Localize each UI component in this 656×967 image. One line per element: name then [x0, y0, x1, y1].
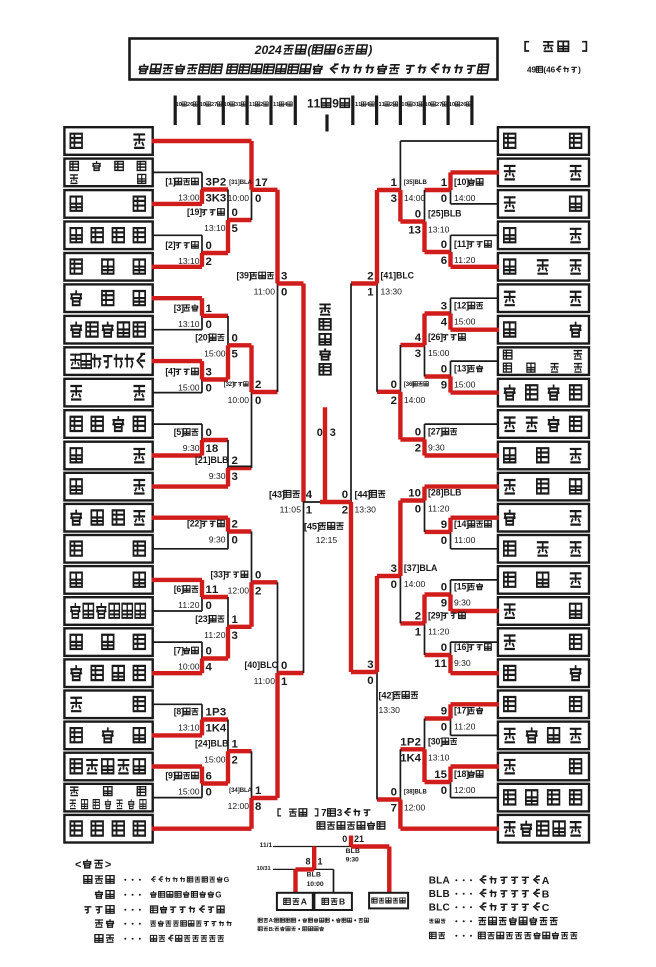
- svg-text:10:00: 10:00: [228, 395, 250, 405]
- svg-text:3: 3: [391, 563, 397, 575]
- svg-text:9:30: 9:30: [209, 535, 226, 545]
- svg-text:3: 3: [441, 301, 447, 313]
- svg-text:2: 2: [232, 455, 238, 467]
- svg-text:>: >: [105, 859, 111, 871]
- svg-text:13:10: 13:10: [204, 223, 226, 233]
- svg-text:6: 6: [337, 43, 344, 57]
- svg-text:0: 0: [206, 240, 212, 252]
- svg-text:11:05: 11:05: [280, 505, 302, 515]
- svg-text:3K3: 3K3: [206, 193, 227, 205]
- svg-text:[16]: [16]: [454, 642, 469, 652]
- svg-text:0: 0: [441, 535, 447, 547]
- svg-text:): ): [578, 66, 581, 75]
- svg-text:0: 0: [232, 332, 238, 344]
- svg-text:14:00: 14:00: [454, 193, 476, 203]
- svg-text:1: 1: [415, 627, 422, 639]
- svg-text:2: 2: [260, 102, 263, 108]
- svg-text:1: 1: [232, 614, 239, 626]
- svg-text:0: 0: [232, 535, 238, 547]
- svg-text:9:30: 9:30: [346, 856, 359, 863]
- svg-text:10: 10: [425, 102, 431, 108]
- svg-text:[2]: [2]: [165, 240, 175, 250]
- svg-text:11:00: 11:00: [454, 535, 476, 545]
- svg-text:0: 0: [206, 383, 212, 395]
- svg-text:C: C: [542, 902, 550, 914]
- svg-text:15:00: 15:00: [178, 383, 200, 393]
- svg-text:6: 6: [206, 771, 212, 783]
- svg-text:0: 0: [206, 427, 212, 439]
- svg-text:[26]: [26]: [428, 332, 443, 342]
- svg-text:7: 7: [391, 803, 397, 815]
- svg-text:0: 0: [391, 379, 397, 391]
- svg-text:[30]: [30]: [428, 737, 443, 747]
- svg-text:1K4: 1K4: [206, 723, 227, 735]
- svg-text:10:00: 10:00: [228, 193, 250, 203]
- svg-text:13:10: 13:10: [178, 256, 200, 266]
- svg-text:0: 0: [342, 489, 348, 501]
- svg-text:[32]: [32]: [224, 382, 234, 388]
- svg-text:[13]: [13]: [454, 364, 469, 374]
- svg-text:9: 9: [441, 519, 447, 531]
- svg-text:[1]: [1]: [165, 177, 175, 187]
- svg-text:0: 0: [391, 579, 397, 591]
- svg-text:[8]: [8]: [174, 707, 184, 717]
- svg-text:1: 1: [318, 857, 323, 867]
- svg-text:17: 17: [255, 177, 268, 189]
- svg-text:3: 3: [391, 193, 397, 205]
- svg-text:0: 0: [441, 582, 447, 594]
- svg-text:1: 1: [206, 303, 213, 315]
- svg-text:11:20: 11:20: [428, 504, 450, 514]
- svg-text:14:00: 14:00: [404, 579, 426, 589]
- svg-text:10: 10: [408, 488, 421, 500]
- svg-text:B: B: [542, 888, 550, 900]
- svg-text:3P2: 3P2: [206, 177, 227, 189]
- svg-text:[5]: [5]: [174, 427, 184, 437]
- svg-text:BLB: BLB: [429, 889, 450, 900]
- svg-text:[24]BLB: [24]BLB: [195, 738, 229, 748]
- svg-text:0: 0: [441, 785, 447, 797]
- svg-text:2024: 2024: [254, 43, 282, 57]
- svg-text:[35]BLB: [35]BLB: [404, 180, 428, 186]
- svg-text:A: A: [301, 897, 307, 907]
- svg-text:0: 0: [206, 319, 212, 331]
- svg-text:9: 9: [441, 380, 447, 392]
- svg-text:[15]: [15]: [454, 582, 469, 592]
- svg-text:[21]BLB: [21]BLB: [195, 455, 229, 465]
- svg-text:0: 0: [441, 239, 447, 251]
- svg-text:27: 27: [211, 102, 217, 108]
- svg-text:3: 3: [367, 659, 373, 671]
- svg-text:2: 2: [232, 754, 238, 766]
- svg-text:B:: B:: [269, 927, 275, 933]
- svg-text:0: 0: [415, 504, 421, 516]
- svg-text:1: 1: [391, 177, 398, 189]
- svg-text:[11]: [11]: [454, 239, 469, 249]
- svg-text:11:00: 11:00: [254, 287, 276, 297]
- svg-text:9:30: 9:30: [209, 471, 226, 481]
- svg-text:2: 2: [391, 395, 397, 407]
- svg-text:13:30: 13:30: [381, 287, 403, 297]
- svg-text:3: 3: [415, 348, 421, 360]
- svg-text:10: 10: [200, 102, 206, 108]
- svg-text:[44]: [44]: [355, 489, 371, 499]
- svg-text:1: 1: [232, 738, 239, 750]
- svg-text:0: 0: [415, 209, 421, 221]
- svg-text:9: 9: [441, 598, 447, 610]
- svg-text:<: <: [75, 859, 81, 871]
- svg-text:13:00: 13:00: [178, 193, 200, 203]
- svg-text:0: 0: [342, 834, 347, 844]
- svg-text:11:00: 11:00: [254, 676, 276, 686]
- svg-text:1: 1: [281, 676, 288, 688]
- svg-text:9:30: 9:30: [454, 598, 471, 608]
- svg-text:2: 2: [367, 271, 373, 283]
- svg-text:1: 1: [306, 505, 313, 517]
- svg-text:15:00: 15:00: [204, 348, 226, 358]
- svg-text:13:10: 13:10: [178, 319, 200, 329]
- svg-text:2: 2: [415, 611, 421, 623]
- svg-text:[22]: [22]: [187, 519, 202, 529]
- svg-text:11: 11: [307, 96, 321, 110]
- svg-text:15:00: 15:00: [428, 348, 450, 358]
- svg-text:1K4: 1K4: [400, 752, 421, 764]
- svg-text:0: 0: [206, 646, 212, 658]
- svg-text:13:10: 13:10: [428, 752, 450, 762]
- svg-text:10: 10: [401, 102, 407, 108]
- svg-text:10/31: 10/31: [257, 866, 271, 872]
- svg-text:[27]: [27]: [428, 427, 443, 437]
- svg-text:13:10: 13:10: [428, 225, 450, 235]
- svg-text:[14]: [14]: [454, 519, 469, 529]
- svg-text:11:20: 11:20: [178, 600, 200, 610]
- svg-text:3: 3: [337, 808, 343, 819]
- svg-text:[45]: [45]: [304, 521, 320, 531]
- svg-text:2: 2: [255, 379, 261, 391]
- svg-text:5: 5: [232, 223, 239, 235]
- svg-text:5: 5: [232, 348, 239, 360]
- svg-text:0: 0: [281, 287, 287, 299]
- svg-text:10:00: 10:00: [307, 881, 324, 888]
- svg-text:[12]: [12]: [454, 301, 469, 311]
- svg-text:0: 0: [206, 600, 212, 612]
- svg-text:11:20: 11:20: [428, 627, 450, 637]
- svg-text:[4]: [4]: [165, 367, 175, 377]
- svg-text:0: 0: [441, 193, 447, 205]
- svg-text:1: 1: [255, 785, 262, 797]
- svg-text:0: 0: [255, 193, 261, 205]
- svg-text:0: 0: [367, 675, 373, 687]
- svg-text:14:00: 14:00: [404, 193, 426, 203]
- svg-text:12:00: 12:00: [228, 801, 250, 811]
- svg-text:G: G: [224, 875, 230, 884]
- svg-text:[31]BLA: [31]BLA: [229, 180, 253, 186]
- svg-text:10: 10: [449, 102, 455, 108]
- svg-text:15:00: 15:00: [454, 380, 476, 390]
- svg-text:BLB: BLB: [346, 848, 360, 855]
- svg-text:[6]: [6]: [174, 584, 184, 594]
- svg-text:13:30: 13:30: [379, 705, 401, 715]
- svg-text:4: 4: [206, 662, 213, 674]
- svg-text:12:00: 12:00: [228, 585, 250, 595]
- svg-text:4: 4: [415, 332, 422, 344]
- svg-text:13:10: 13:10: [178, 723, 200, 733]
- svg-text:3: 3: [281, 271, 287, 283]
- svg-text:[9]: [9]: [165, 771, 175, 781]
- svg-text:15: 15: [434, 769, 447, 781]
- svg-text:BLC: BLC: [429, 903, 450, 914]
- svg-text:9:30: 9:30: [454, 658, 471, 668]
- svg-text:0: 0: [255, 569, 261, 581]
- svg-text:9: 9: [441, 706, 447, 718]
- svg-text:9: 9: [332, 96, 339, 110]
- svg-text:[34]BLA: [34]BLA: [229, 788, 253, 794]
- svg-text:[25]BLB: [25]BLB: [428, 209, 462, 219]
- svg-text:[39]: [39]: [237, 271, 252, 281]
- svg-text:BLA: BLA: [429, 876, 450, 887]
- svg-text:[20]: [20]: [195, 333, 210, 343]
- svg-text:[29]: [29]: [428, 611, 443, 621]
- svg-text:[33]: [33]: [211, 570, 226, 580]
- svg-text:15:00: 15:00: [454, 317, 476, 327]
- svg-text:9:30: 9:30: [428, 443, 445, 453]
- svg-text:[40]BLC: [40]BLC: [245, 660, 279, 670]
- svg-text:3: 3: [330, 427, 336, 439]
- svg-text:0: 0: [232, 207, 238, 219]
- svg-text:A: A: [542, 875, 550, 887]
- svg-text:12:00: 12:00: [454, 785, 476, 795]
- svg-text:[17]: [17]: [454, 706, 469, 716]
- svg-text:2: 2: [206, 256, 212, 268]
- svg-text:[10]: [10]: [454, 177, 469, 187]
- svg-text:1: 1: [441, 177, 448, 189]
- svg-text:[7]: [7]: [174, 646, 184, 656]
- svg-text:B: B: [339, 897, 345, 907]
- svg-text:12:00: 12:00: [404, 803, 426, 813]
- svg-text:(46: (46: [543, 66, 555, 75]
- svg-text:[18]: [18]: [454, 769, 469, 779]
- svg-text:1P2: 1P2: [400, 736, 421, 748]
- svg-text:3: 3: [206, 367, 212, 379]
- svg-text:21: 21: [354, 834, 364, 844]
- svg-text:[23]: [23]: [195, 614, 210, 624]
- svg-text:G: G: [215, 890, 221, 899]
- svg-text:3: 3: [232, 630, 238, 642]
- svg-text:0: 0: [391, 787, 397, 799]
- svg-text:9:30: 9:30: [183, 443, 200, 453]
- svg-text:0: 0: [441, 364, 447, 376]
- svg-text:11/1: 11/1: [260, 842, 273, 849]
- svg-text:13: 13: [408, 225, 421, 237]
- svg-text:10: 10: [176, 102, 182, 108]
- svg-text:8: 8: [255, 801, 261, 813]
- svg-text:2: 2: [255, 585, 261, 597]
- svg-text:0: 0: [441, 722, 447, 734]
- svg-text:49: 49: [527, 66, 537, 75]
- svg-text:0: 0: [441, 642, 447, 654]
- svg-text:0: 0: [415, 427, 421, 439]
- svg-text:2: 2: [232, 519, 238, 531]
- svg-text:10: 10: [224, 102, 230, 108]
- svg-text:0: 0: [206, 787, 212, 799]
- svg-text:[42]: [42]: [379, 690, 395, 700]
- svg-text:1P3: 1P3: [206, 707, 227, 719]
- svg-text:27: 27: [436, 102, 442, 108]
- svg-text:4: 4: [441, 317, 448, 329]
- svg-text:15:00: 15:00: [178, 787, 200, 797]
- svg-text:0: 0: [281, 660, 287, 672]
- svg-text:11:20: 11:20: [454, 722, 476, 732]
- svg-text:11:20: 11:20: [454, 255, 476, 265]
- svg-text:0: 0: [255, 395, 261, 407]
- svg-text:2: 2: [415, 443, 421, 455]
- svg-text:BLB: BLB: [307, 871, 321, 878]
- svg-text:12:15: 12:15: [316, 535, 338, 545]
- svg-text:1: 1: [367, 287, 374, 299]
- svg-text:15:00: 15:00: [204, 754, 226, 764]
- svg-text:7: 7: [321, 808, 327, 819]
- svg-text:2: 2: [390, 102, 393, 108]
- svg-text:[19]: [19]: [187, 207, 202, 217]
- svg-text:[37]BLA: [37]BLA: [404, 563, 438, 573]
- svg-text:8: 8: [306, 857, 311, 867]
- svg-text:11:20: 11:20: [204, 630, 226, 640]
- svg-text:2: 2: [342, 505, 348, 517]
- svg-text:[28]BLB: [28]BLB: [428, 488, 462, 498]
- svg-text:11: 11: [206, 584, 219, 596]
- svg-text:18: 18: [206, 443, 219, 455]
- svg-text:0: 0: [317, 427, 323, 439]
- svg-text:[3]: [3]: [174, 303, 184, 313]
- svg-text:10:00: 10:00: [178, 662, 200, 672]
- svg-text:A:: A:: [269, 918, 275, 924]
- svg-text:6: 6: [441, 255, 447, 267]
- svg-text:[38]BLB: [38]BLB: [404, 790, 428, 796]
- svg-text:11: 11: [434, 658, 447, 670]
- svg-text:4: 4: [306, 489, 313, 501]
- svg-text:[43]: [43]: [269, 489, 285, 499]
- svg-text:[41]BLC: [41]BLC: [381, 271, 415, 281]
- svg-text:14:00: 14:00: [404, 395, 426, 405]
- svg-text:13:30: 13:30: [355, 505, 377, 515]
- svg-text:3: 3: [232, 471, 238, 483]
